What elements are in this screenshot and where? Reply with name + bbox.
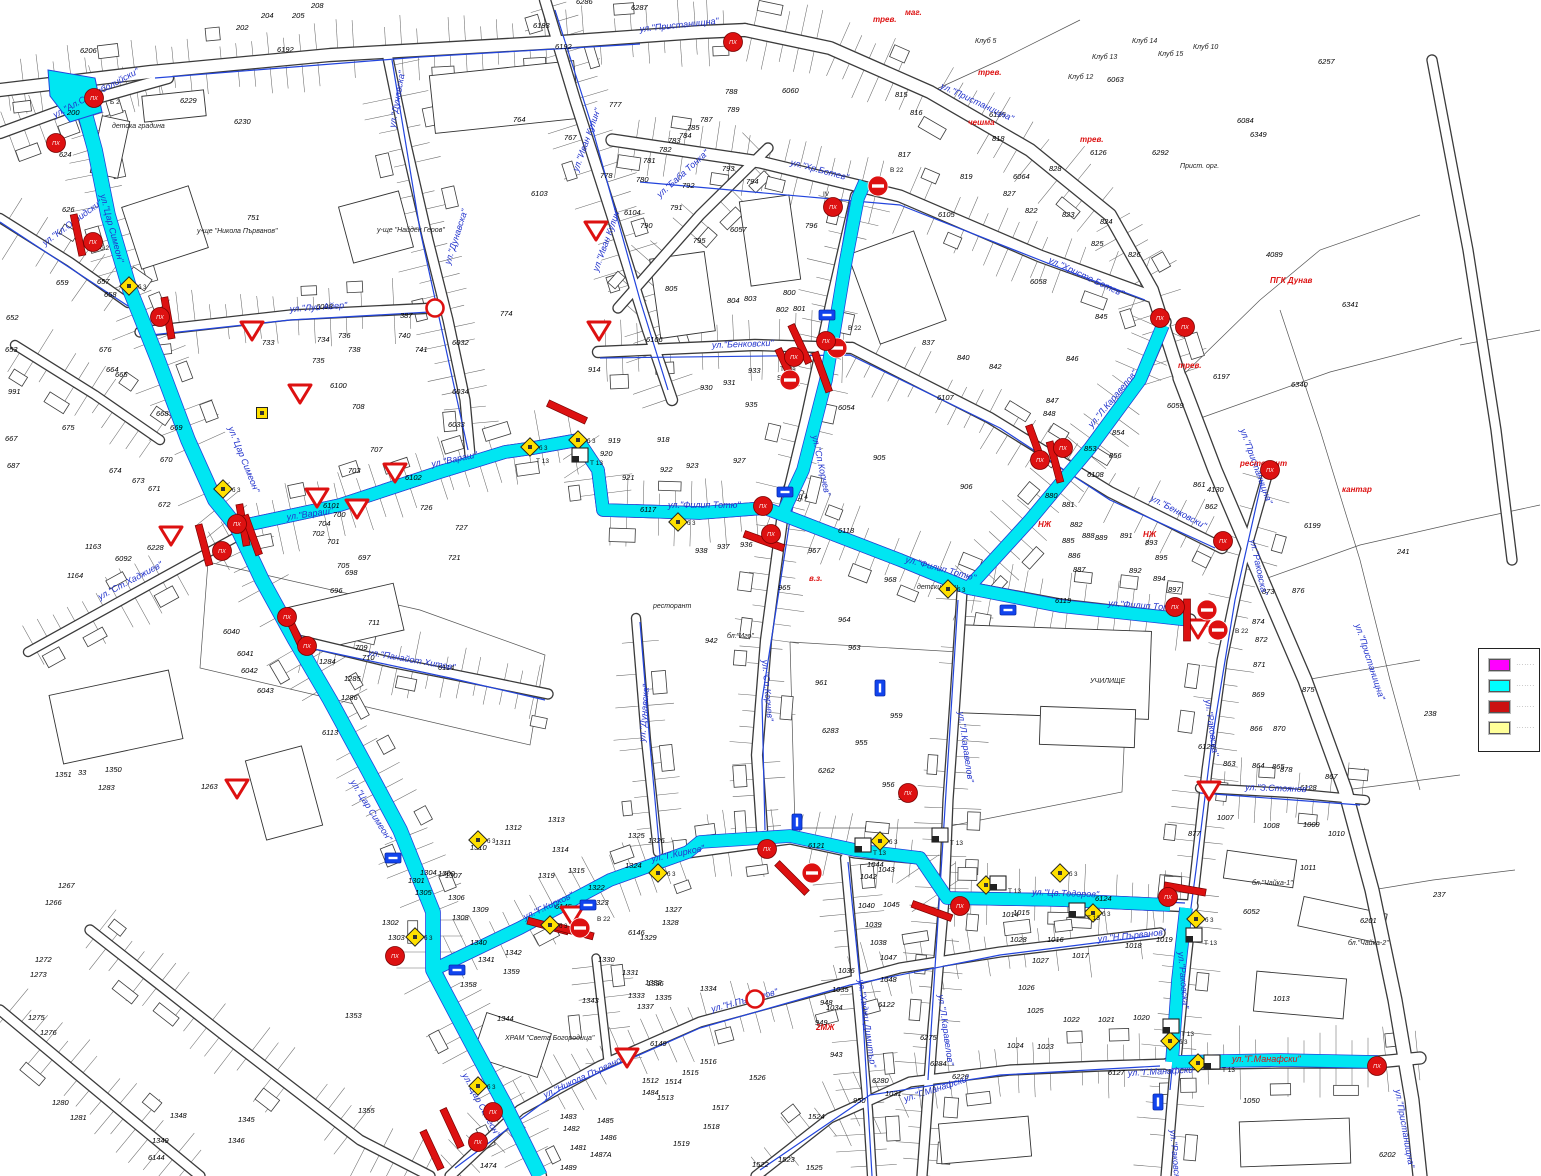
svg-text:Клуб 12: Клуб 12: [1068, 73, 1093, 81]
svg-text:1523: 1523: [778, 1155, 796, 1164]
svg-text:1025: 1025: [1027, 1006, 1045, 1015]
svg-text:1021: 1021: [1098, 1015, 1115, 1024]
svg-text:1285: 1285: [344, 674, 362, 683]
svg-text:1022: 1022: [1063, 1015, 1081, 1024]
svg-text:1020: 1020: [1133, 1013, 1151, 1022]
svg-text:963: 963: [848, 643, 861, 652]
svg-text:877: 877: [1188, 829, 1201, 838]
svg-text:1009: 1009: [1303, 820, 1321, 829]
svg-text:2МЖ: 2МЖ: [815, 1023, 835, 1032]
svg-text:1483: 1483: [560, 1112, 578, 1121]
svg-text:1272: 1272: [35, 955, 53, 964]
svg-text:ул."Пристанищна": ул."Пристанищна": [1353, 622, 1388, 702]
svg-text:676: 676: [99, 345, 112, 354]
svg-text:876: 876: [1292, 586, 1305, 595]
svg-text:1337: 1337: [637, 1002, 655, 1011]
svg-text:805: 805: [665, 284, 678, 293]
svg-text:6033: 6033: [448, 420, 466, 429]
svg-text:905: 905: [873, 453, 886, 462]
svg-text:1273: 1273: [30, 970, 48, 979]
svg-text:734: 734: [317, 335, 330, 344]
svg-text:1340: 1340: [470, 938, 488, 947]
fire-hydrant-icon: ПХ: [1166, 598, 1185, 617]
svg-text:727: 727: [455, 523, 468, 532]
svg-text:1284: 1284: [319, 657, 336, 666]
svg-text:1302: 1302: [382, 918, 400, 927]
water-pipes-layer: [0, 10, 1360, 1176]
svg-text:6121: 6121: [808, 841, 825, 850]
svg-text:792: 792: [682, 181, 695, 190]
closed-section-bar-icon: [546, 400, 587, 424]
svg-text:ПХ: ПХ: [52, 141, 60, 147]
svg-text:Т 13: Т 13: [1181, 1031, 1194, 1038]
blue-sign-icon: [875, 680, 885, 696]
svg-text:6144: 6144: [148, 1153, 165, 1162]
svg-text:864: 864: [1252, 761, 1265, 770]
svg-text:ул."Никола Първанов": ул."Никола Първанов": [541, 1051, 631, 1100]
fire-hydrant-icon: ПХ: [84, 233, 103, 252]
svg-text:938: 938: [695, 546, 708, 555]
svg-text:6228: 6228: [147, 543, 165, 552]
svg-text:874: 874: [1252, 617, 1265, 626]
svg-text:707: 707: [370, 445, 383, 454]
svg-text:956: 956: [882, 780, 895, 789]
svg-text:788: 788: [725, 87, 738, 96]
svg-text:1275: 1275: [28, 1013, 46, 1022]
svg-text:б 3: б 3: [232, 488, 241, 494]
svg-text:1164: 1164: [67, 571, 83, 580]
svg-text:804: 804: [727, 296, 740, 305]
svg-text:ПХ: ПХ: [218, 549, 226, 555]
svg-text:6292: 6292: [1152, 148, 1170, 157]
svg-text:6034: 6034: [452, 387, 469, 396]
svg-text:6042: 6042: [241, 666, 259, 675]
svg-text:В 22: В 22: [890, 167, 904, 174]
svg-text:6275: 6275: [920, 1033, 938, 1042]
no-entry-sign-icon: [1197, 600, 1217, 620]
svg-text:794: 794: [746, 177, 759, 186]
svg-text:6341: 6341: [1342, 300, 1359, 309]
legend-label: ·······: [1516, 704, 1535, 710]
svg-text:1526: 1526: [749, 1073, 767, 1082]
svg-text:6262: 6262: [818, 766, 836, 775]
blue-sign-icon: [777, 487, 793, 497]
svg-text:1524: 1524: [808, 1112, 825, 1121]
svg-text:800: 800: [783, 288, 796, 297]
svg-text:848: 848: [1043, 409, 1056, 418]
svg-text:936: 936: [740, 540, 753, 549]
svg-text:1322: 1322: [588, 883, 606, 892]
svg-text:6287: 6287: [631, 3, 649, 12]
svg-text:б 3: б 3: [667, 872, 676, 878]
svg-text:937: 937: [717, 542, 730, 551]
svg-text:854: 854: [1112, 428, 1125, 437]
svg-text:871: 871: [1253, 660, 1266, 669]
svg-text:ПХ: ПХ: [1036, 458, 1044, 464]
svg-text:1343: 1343: [582, 996, 600, 1005]
blue-sign-icon: [1153, 1094, 1163, 1110]
svg-text:674: 674: [109, 466, 122, 475]
fire-hydrant-icon: ПХ: [785, 348, 804, 367]
svg-text:889: 889: [1095, 533, 1108, 542]
svg-text:882: 882: [1070, 520, 1083, 529]
svg-text:237: 237: [1432, 890, 1446, 899]
svg-text:1305: 1305: [415, 888, 433, 897]
svg-text:1047: 1047: [880, 953, 898, 962]
svg-text:733: 733: [262, 338, 275, 347]
svg-text:818: 818: [992, 134, 1005, 143]
svg-text:922: 922: [660, 465, 673, 474]
svg-text:675: 675: [62, 423, 75, 432]
svg-text:893: 893: [1145, 538, 1158, 547]
fire-hydrant-icon: ПХ: [213, 542, 232, 561]
svg-text:6043: 6043: [257, 686, 275, 695]
valve-diamond-icon: б 3: [1051, 864, 1078, 882]
svg-text:208: 208: [310, 1, 324, 10]
svg-text:878: 878: [1280, 765, 1293, 774]
svg-text:ПХ: ПХ: [729, 40, 737, 46]
svg-text:6103: 6103: [531, 189, 549, 198]
svg-text:856: 856: [1109, 451, 1122, 460]
svg-text:735: 735: [312, 356, 325, 365]
svg-text:1353: 1353: [345, 1011, 363, 1020]
svg-text:1474: 1474: [480, 1161, 497, 1170]
svg-text:6349: 6349: [1250, 130, 1268, 139]
svg-text:671: 671: [148, 484, 161, 493]
svg-text:796: 796: [805, 221, 818, 230]
svg-text:1324: 1324: [625, 861, 642, 870]
svg-text:968: 968: [884, 575, 897, 584]
svg-text:931: 931: [723, 378, 736, 387]
svg-text:1024: 1024: [1007, 1041, 1024, 1050]
svg-text:ПХ: ПХ: [90, 96, 98, 102]
svg-text:ПХ: ПХ: [1164, 895, 1172, 901]
svg-text:В 22: В 22: [1235, 628, 1249, 635]
warning-triangle-icon: [226, 780, 248, 798]
svg-text:923: 923: [686, 461, 699, 470]
closed-section-bar-icon: [440, 1107, 464, 1148]
svg-text:1355: 1355: [358, 1106, 376, 1115]
svg-text:1301: 1301: [408, 876, 425, 885]
svg-text:887: 887: [1073, 565, 1086, 574]
fire-hydrant-icon: ПХ: [298, 637, 317, 656]
svg-text:652: 652: [6, 313, 19, 322]
svg-text:1351: 1351: [55, 770, 72, 779]
svg-text:847: 847: [1046, 396, 1059, 405]
legend-label: ·······: [1516, 662, 1535, 668]
svg-text:1350: 1350: [105, 765, 123, 774]
warning-triangle-icon: [289, 385, 311, 403]
no-entry-sign-icon: [780, 370, 800, 390]
svg-text:921: 921: [622, 473, 635, 482]
fire-hydrant-icon: ПХ: [1159, 888, 1178, 907]
svg-text:709: 709: [355, 643, 368, 652]
svg-text:204: 204: [260, 11, 274, 20]
svg-text:822: 822: [1025, 206, 1038, 215]
svg-text:815: 815: [895, 90, 908, 99]
blue-sign-icon: [385, 853, 401, 863]
svg-text:6229: 6229: [180, 96, 198, 105]
svg-text:Клуб 10: Клуб 10: [1193, 43, 1218, 51]
svg-text:1342: 1342: [505, 948, 523, 957]
svg-text:ПХ: ПХ: [829, 205, 837, 211]
svg-text:4089: 4089: [1266, 250, 1284, 259]
svg-text:784: 784: [679, 131, 692, 140]
fire-hydrant-icon: ПХ: [85, 89, 104, 108]
legend-item-proposed: ·······: [1489, 659, 1535, 670]
svg-text:826: 826: [1128, 250, 1141, 259]
svg-text:ПХ: ПХ: [283, 615, 291, 621]
fire-hydrant-icon: ПХ: [817, 332, 836, 351]
svg-text:824: 824: [1100, 217, 1113, 226]
svg-text:1281: 1281: [70, 1113, 87, 1122]
svg-text:6119: 6119: [1055, 596, 1072, 605]
svg-text:1309: 1309: [472, 905, 490, 914]
svg-text:1486: 1486: [600, 1133, 618, 1142]
svg-text:1308: 1308: [452, 913, 470, 922]
svg-text:в.з.: в.з.: [809, 574, 822, 583]
svg-text:1048: 1048: [880, 975, 898, 984]
map-canvas[interactable]: 2002022042052086206619261936192622962307…: [0, 0, 1541, 1176]
svg-text:1313: 1313: [548, 815, 566, 824]
svg-text:Т 13: Т 13: [590, 460, 603, 467]
svg-text:789: 789: [727, 105, 740, 114]
svg-text:1018: 1018: [1125, 941, 1143, 950]
svg-text:891: 891: [1120, 531, 1133, 540]
svg-text:1325: 1325: [628, 831, 646, 840]
svg-text:1333: 1333: [628, 991, 646, 1000]
svg-text:948: 948: [820, 998, 833, 1007]
svg-text:1359: 1359: [503, 967, 521, 976]
svg-text:Т 13: Т 13: [1087, 915, 1100, 922]
svg-text:ПХ: ПХ: [759, 504, 767, 510]
svg-text:1266: 1266: [45, 898, 63, 907]
svg-text:ПХ: ПХ: [1219, 539, 1227, 545]
svg-text:837: 837: [922, 338, 935, 347]
map-viewport[interactable]: 2002022042052086206619261936192622962307…: [0, 0, 1541, 1176]
svg-text:1330: 1330: [598, 955, 616, 964]
svg-text:967: 967: [808, 546, 821, 555]
svg-text:1482: 1482: [563, 1124, 581, 1133]
svg-text:1522: 1522: [752, 1160, 770, 1169]
svg-text:ХРАМ "Света Богородица": ХРАМ "Света Богородица": [504, 1034, 595, 1042]
svg-text:1283: 1283: [98, 783, 116, 792]
svg-text:1512: 1512: [642, 1076, 660, 1085]
svg-text:ПХ: ПХ: [489, 1110, 497, 1116]
svg-text:700: 700: [333, 510, 346, 519]
end-point-ring-icon: [427, 300, 444, 317]
svg-text:б 3: б 3: [424, 936, 433, 942]
svg-text:1319: 1319: [538, 871, 556, 880]
svg-text:ресторант: ресторант: [652, 603, 691, 610]
svg-text:202: 202: [235, 23, 249, 32]
svg-text:863: 863: [1223, 759, 1236, 768]
svg-text:738: 738: [348, 345, 361, 354]
svg-text:1515: 1515: [682, 1068, 700, 1077]
svg-text:1027: 1027: [1032, 956, 1050, 965]
svg-text:918: 918: [657, 435, 670, 444]
svg-text:790: 790: [640, 221, 653, 230]
svg-text:НЖ: НЖ: [1038, 520, 1052, 529]
svg-text:828: 828: [1049, 164, 1062, 173]
svg-text:6108: 6108: [1087, 470, 1105, 479]
warning-triangle-icon: [588, 322, 610, 340]
svg-text:Т 13: Т 13: [1008, 888, 1021, 895]
svg-text:930: 930: [700, 383, 713, 392]
svg-text:667: 667: [5, 434, 18, 443]
svg-text:1042: 1042: [860, 872, 878, 881]
svg-text:697: 697: [358, 553, 371, 562]
fire-hydrant-icon: ПХ: [951, 897, 970, 916]
svg-text:Прист. орг.: Прист. орг.: [1180, 163, 1219, 170]
svg-text:Клуб 13: Клуб 13: [1092, 53, 1117, 61]
legend-label: ·······: [1516, 725, 1535, 731]
svg-text:6092: 6092: [115, 554, 133, 563]
svg-text:ПГК Дунав: ПГК Дунав: [1270, 276, 1313, 285]
legend-label: ·······: [1516, 683, 1535, 689]
svg-text:ПХ: ПХ: [904, 791, 912, 797]
svg-text:1043: 1043: [878, 865, 896, 874]
fire-hydrant-icon: ПХ: [1031, 451, 1050, 470]
svg-text:842: 842: [989, 362, 1002, 371]
svg-text:трев.: трев.: [1080, 135, 1104, 144]
svg-text:Т 13: Т 13: [950, 840, 963, 847]
svg-text:846: 846: [1066, 354, 1079, 363]
svg-text:1516: 1516: [700, 1057, 718, 1066]
end-point-ring-icon: [747, 991, 764, 1008]
svg-text:1311: 1311: [495, 838, 511, 847]
legend-swatch-magenta: [1489, 659, 1510, 671]
svg-text:777: 777: [609, 100, 622, 109]
svg-text:Клуб 5: Клуб 5: [975, 37, 997, 45]
svg-text:6057: 6057: [730, 225, 748, 234]
fire-hydrant-icon: ПХ: [228, 515, 247, 534]
svg-text:у-ще "Найден Геров": у-ще "Найден Геров": [376, 226, 445, 234]
svg-text:241: 241: [1396, 547, 1410, 556]
svg-text:672: 672: [158, 500, 171, 509]
fire-hydrant-icon: ПХ: [1176, 318, 1195, 337]
svg-text:6107: 6107: [937, 393, 955, 402]
fire-hydrant-icon: ПХ: [1214, 532, 1233, 551]
svg-text:673: 673: [132, 476, 145, 485]
svg-text:964: 964: [838, 615, 851, 624]
svg-text:6340: 6340: [1291, 380, 1309, 389]
svg-text:6206: 6206: [80, 46, 98, 55]
svg-text:6117: 6117: [640, 505, 657, 514]
svg-text:6105: 6105: [938, 210, 956, 219]
svg-text:840: 840: [957, 353, 970, 362]
svg-text:702: 702: [312, 529, 325, 538]
svg-text:Т 13: Т 13: [536, 458, 549, 465]
svg-text:1303: 1303: [388, 933, 406, 942]
svg-text:ПХ: ПХ: [233, 522, 241, 528]
svg-text:бл."Чайка-1": бл."Чайка-1": [1252, 879, 1293, 887]
svg-text:897: 897: [1168, 585, 1181, 594]
svg-text:741: 741: [415, 345, 428, 354]
svg-text:ПХ: ПХ: [767, 532, 775, 538]
svg-text:у-ще "Никола Първанов": у-ще "Никола Първанов": [196, 228, 278, 235]
svg-text:785: 785: [687, 123, 700, 132]
svg-text:626: 626: [62, 205, 75, 214]
svg-text:869: 869: [1252, 690, 1265, 699]
svg-text:955: 955: [855, 738, 868, 747]
svg-text:6100: 6100: [330, 381, 348, 390]
svg-text:6032: 6032: [452, 338, 470, 347]
svg-text:1329: 1329: [640, 933, 658, 942]
svg-text:6283: 6283: [822, 726, 840, 735]
svg-text:6202: 6202: [1379, 1150, 1397, 1159]
svg-text:6284: 6284: [930, 1059, 947, 1068]
svg-text:ул."Г.Манафски": ул."Г.Манафски": [1231, 1054, 1302, 1064]
svg-text:1286: 1286: [341, 693, 359, 702]
svg-text:1010: 1010: [1328, 829, 1346, 838]
svg-text:6052: 6052: [1243, 907, 1261, 916]
fire-hydrant-icon: ПХ: [278, 608, 297, 627]
svg-text:825: 825: [1091, 239, 1104, 248]
fire-hydrant-icon: ПХ: [386, 947, 405, 966]
svg-text:ПХ: ПХ: [790, 355, 798, 361]
fire-hydrant-icon: ПХ: [899, 784, 918, 803]
svg-text:1023: 1023: [1037, 1042, 1055, 1051]
svg-text:965: 965: [778, 583, 791, 592]
svg-text:845: 845: [1095, 312, 1108, 321]
svg-text:1315: 1315: [568, 866, 586, 875]
svg-text:Клуб 14: Клуб 14: [1132, 37, 1157, 45]
svg-text:881: 881: [1062, 500, 1075, 509]
svg-text:1314: 1314: [552, 845, 569, 854]
svg-text:704: 704: [318, 519, 331, 528]
svg-text:ПХ: ПХ: [956, 904, 964, 910]
svg-text:6054: 6054: [838, 403, 855, 412]
svg-text:1312: 1312: [505, 823, 523, 832]
svg-text:трев.: трев.: [978, 68, 1002, 77]
svg-text:б 3: б 3: [138, 285, 147, 291]
svg-text:ул."Цар Симеон": ул."Цар Симеон": [226, 424, 262, 495]
svg-text:823: 823: [1062, 210, 1075, 219]
svg-text:ПХ: ПХ: [1181, 325, 1189, 331]
svg-text:6113: 6113: [322, 728, 339, 737]
svg-text:1007: 1007: [1217, 813, 1235, 822]
svg-text:НЖ: НЖ: [1143, 530, 1157, 539]
svg-text:872: 872: [1255, 635, 1268, 644]
svg-text:Т 13: Т 13: [1222, 1067, 1235, 1074]
svg-text:687: 687: [7, 461, 20, 470]
svg-text:1263: 1263: [201, 782, 219, 791]
svg-text:387: 387: [400, 311, 413, 320]
svg-text:703: 703: [348, 466, 361, 475]
svg-text:6104: 6104: [624, 208, 641, 217]
svg-text:ПХ: ПХ: [1171, 605, 1179, 611]
svg-text:6040: 6040: [223, 627, 241, 636]
svg-text:6192: 6192: [277, 45, 295, 54]
svg-text:б 3: б 3: [487, 839, 496, 845]
fire-hydrant-icon: ПХ: [1368, 1057, 1387, 1076]
blue-sign-icon: [792, 814, 802, 830]
svg-text:1519: 1519: [673, 1139, 691, 1148]
svg-text:б 3: б 3: [1205, 918, 1214, 924]
svg-text:1307: 1307: [445, 871, 463, 880]
svg-text:1045: 1045: [883, 900, 901, 909]
svg-text:4130: 4130: [1207, 485, 1225, 494]
svg-text:1327: 1327: [665, 905, 683, 914]
fire-hydrant-icon: ПХ: [754, 497, 773, 516]
svg-text:1345: 1345: [238, 1115, 256, 1124]
svg-text:1267: 1267: [58, 881, 76, 890]
svg-text:935: 935: [745, 400, 758, 409]
svg-text:ПХ: ПХ: [822, 339, 830, 345]
svg-text:1341: 1341: [478, 955, 495, 964]
svg-text:698: 698: [345, 568, 358, 577]
